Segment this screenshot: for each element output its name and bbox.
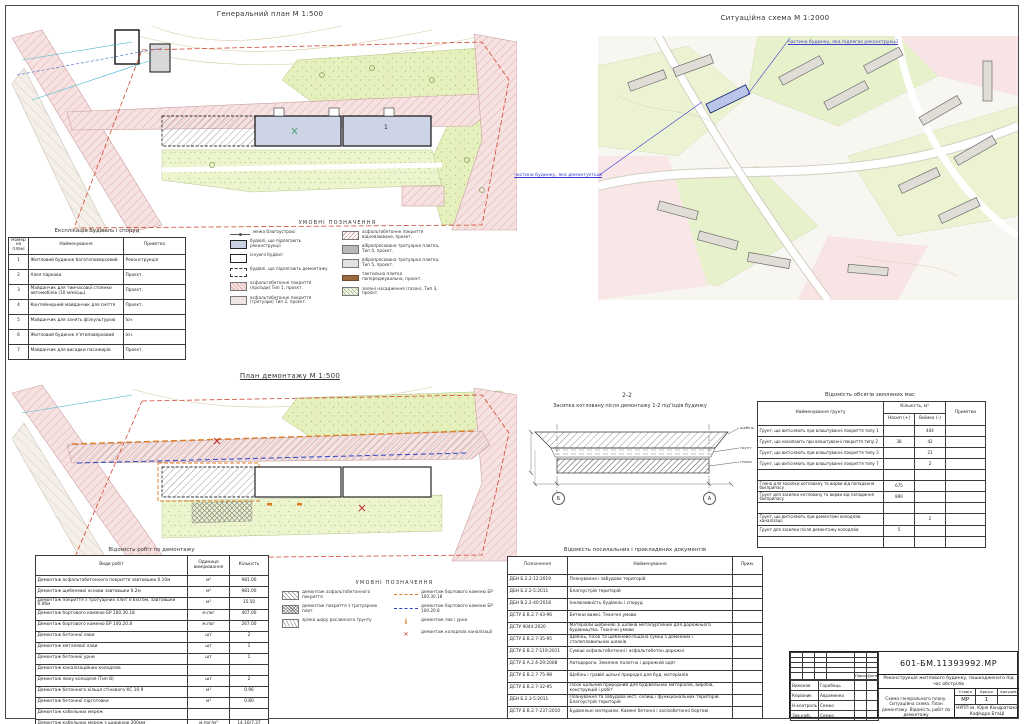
axis-marker-left: Б [552,492,565,505]
situation-map [598,36,1018,300]
table-cell: Демонтаж металевої лави [36,642,188,653]
table-row: Демонтаж покриття з тротуарних плит 0.6х… [36,598,269,610]
table-cell [733,575,763,587]
table-cell [733,659,763,671]
table-cell [733,599,763,611]
sw-dem-bort2-icon [394,608,418,609]
table-cell: 0.96 [230,686,269,697]
column-header: Дата [867,673,879,680]
table-row: ДСТУ Б В.2.7-119:2011Суміші асфальтобето… [508,647,763,659]
table-row: Демонтаж кабельних мереж [36,708,269,719]
table-cell: Матеріали щебеневі зі шлаків металургійн… [568,623,733,635]
table-cell: 42 [915,437,946,448]
table-cell: Алея паркова [29,269,124,284]
table-cell: 267.00 [230,620,269,631]
stage-sheet-grid: Стадія Аркуш Аркушів МР 1 [955,689,1019,705]
table-cell: Демонтаж бетонної лави [36,631,188,642]
column-header: Номер на плані [9,238,29,255]
table-cell: Щебінь і гравій щільні природні для буд.… [568,671,733,683]
table-row: Демонтаж бетонного кільця стінового КС 1… [36,686,269,697]
table-row [758,503,986,514]
sheet-label: Аркуш [976,689,997,696]
table-cell: 3 [9,284,29,299]
table-cell: Ґрунт, що витісняють при влаштуванні пок… [758,459,884,470]
legend-item: асфальтобетонне покриття (проїзди) Тип 1… [230,281,328,291]
table-cell: Бетони важкі. Технічні умови [568,611,733,623]
table-cell: 2 [915,459,946,470]
table-row: ДБН В.2.2-40:2018Інклюзивність будівель … [508,599,763,611]
table-cell: м³ [188,686,230,697]
legend-item: асфальтобетонне покриття відновлюване, п… [342,230,440,240]
sw-demo-icon [230,268,247,277]
backfill-top-layer [535,432,728,448]
table-cell: Пісок щільний природний для будівельних … [568,683,733,695]
legend-label: демонтаж колодязів каналізації [421,630,504,635]
table-row: ДСТУ Б В.2.7-237:2010Будівельні матеріал… [508,707,763,719]
stage-value: МР [955,696,976,705]
table-cell [946,492,986,503]
table-cell: м² [188,587,230,598]
table-cell: 7 [9,344,29,359]
column-header: Насип (+) [884,414,915,426]
table-cell [855,691,867,701]
table-cell: Проєкт. [124,344,186,359]
table-cell: Реконструкція [124,254,186,269]
legend-title: УМОВНІ ПОЗНАЧЕННЯ [230,220,445,226]
table-cell: ДБН Б.2.2-5:2011 [508,587,568,599]
table-cell: Проєкт. [124,284,186,299]
sw-recon-icon [230,240,247,249]
sw-dem-lav-icon [394,619,418,626]
table-cell [733,671,763,683]
table-row: Демонтаж бортового каменю БР 100.30.18м.… [36,609,269,620]
table-cell [230,664,269,675]
table-header-row: Позначення Найменування Прим. [508,557,763,575]
building-section-right [343,467,431,497]
table-cell [733,707,763,719]
legend-label: існуючі будівлі [250,253,328,258]
table-cell [758,536,884,547]
legend-item: вібропресована тротуарна плитка, Тип 5, … [342,258,440,268]
table-row: ДБН Б.2.2-12:2019Планування і забудова т… [508,575,763,587]
earthworks-title: Відомість обсягів земляних мас [755,392,985,398]
section-callout: щебінь [740,425,754,430]
table-cell [230,708,269,719]
table-cell [867,691,879,701]
lawn-upper [282,48,504,102]
legend-label: асфальтобетонне покриття (тротуари) Тип … [250,296,328,306]
sheets-label: Аркушів [998,689,1019,696]
table-cell: Керівник [791,691,819,701]
legend-column-right: асфальтобетонне покриття відновлюване, п… [342,230,440,305]
table-cell: Н.контроль [791,701,819,711]
paving-demolition-area [192,501,252,523]
table-row: ДСТУ Б В.2.7-35-95Щебінь, пісок та щебен… [508,635,763,647]
table-cell [915,525,946,536]
table-cell: 981.00 [230,576,269,587]
roles-table: ВиконавГоробецьКерівникАвраменкоН.контро… [790,680,879,721]
table-cell: 675 [884,481,915,492]
table-cell [946,426,986,437]
legend-column-left: демонтаж асфальтобетонного покриттядемон… [282,590,380,638]
table-cell [867,701,879,711]
table-cell: 407.00 [230,609,269,620]
legend-item: асфальтобетонне покриття (тротуари) Тип … [230,296,328,306]
table-cell: Демонтаж бортового каменю БР 100.30.18 [36,609,188,620]
table-cell: ДСТУ Б В.2.7-35-95 [508,635,568,647]
table-row: Ґрунт, що витісняють при демонтажі колод… [758,514,986,525]
general-plan-drawing [12,20,517,232]
legend-item: будівлі, що підлягають демонтажу [230,267,328,277]
table-cell: 38 [884,437,915,448]
table-cell: Демонтаж бетонної урни [36,653,188,664]
table-row: 6Житловий будинок п'ятиповерховийІсн. [9,329,186,344]
table-cell: ДСТУ Б В.2.7-43-96 [508,611,568,623]
table-cell: Майданчик для тимчасової стоянки автомоб… [29,284,124,299]
table-cell [733,647,763,659]
table-cell: Демонтаж бетонного кільця стінового КС 1… [36,686,188,697]
sw-green-icon [342,287,359,296]
sw-dem-soil-icon [282,619,299,628]
table-cell: Планування і забудова територій [568,575,733,587]
table-cell: ДСТУ Б А.2.4-29:2008 [508,659,568,671]
table-cell [946,437,986,448]
table-row: Демонтаж металевої лавишт1 [36,642,269,653]
revision-grid: Підпис Дата [790,652,879,680]
table-cell [946,503,986,514]
table-row: 4Контейнерний майданчик для сміттяПроєкт… [9,299,186,314]
table-cell: Демонтаж бортового каменю БР 100.20.8 [36,620,188,631]
legend-label: демонтаж бортового каменю БР 100.30.18 [421,590,504,600]
table-cell: Існ. [124,329,186,344]
table-cell: Ґрунт, що витісняють при демонтажі колод… [758,514,884,525]
table-row: Ґрунт, що насипають при влаштуванні покр… [758,437,986,448]
table-cell: 981.00 [230,587,269,598]
table-header-row: Найменування ґрунту Кількість, м³ Приміт… [758,402,986,414]
table-row: ДБН Б.2.3-5:2011Планування та забудова м… [508,695,763,707]
legend-label: асфальтобетонне покриття (проїзди) Тип 1… [250,281,328,291]
table-row: ДСТУ Б В.2.7-43-96Бетони важкі. Технічні… [508,611,763,623]
column-header: Одиниця вимірювання [188,556,230,576]
table-cell: ДСТУ Б В.2.7-119:2011 [508,647,568,659]
column-header: Позначення [508,557,568,575]
legend-item: демонтаж асфальтобетонного покриття [282,590,380,600]
table-cell: Глина для засипки котловану та вирви від… [758,481,884,492]
table-cell [884,514,915,525]
legend-column-right: демонтаж бортового каменю БР 100.30.18де… [394,590,504,638]
table-cell [946,525,986,536]
table-cell: Демонтаж люку колодязя (Тип В) [36,675,188,686]
table-cell: Суміші асфальтобетонні і асфальтобетон д… [568,647,733,659]
axis-marker-right: А [703,492,716,505]
table-row: 2Алея парковаПроєкт. [9,269,186,284]
table-cell: шт [188,631,230,642]
table-cell: 14.16/7.37 [230,719,269,724]
table-row: Ґрунт, що витісняють при влаштуванні пок… [758,448,986,459]
table-cell: 0.80 [230,697,269,708]
legend-label: демонтаж асфальтобетонного покриття [302,590,380,600]
table-cell [915,492,946,503]
legend-label: тактильна плитка попереджувальна, проєкт… [362,272,440,282]
table-cell: Майданчик для висадки пасажирів [29,344,124,359]
table-cell: 2 [230,675,269,686]
table-cell: ДСТУ Б В.2.7-32-95 [508,683,568,695]
table-cell: Демонтаж щебеневої основи завтовшки 0.2м [36,587,188,598]
table-cell: Благоустрій територій [568,587,733,599]
column-header: Найменування ґрунту [758,402,884,426]
table-cell: 1 [230,642,269,653]
table-cell: Житловий будинок багатоповерховий [29,254,124,269]
table-row: Ґрунт для засипки котловану та вирви від… [758,492,986,503]
table-cell [733,695,763,707]
section-callout: ґрунт [740,445,751,450]
table-cell: м.пог [188,609,230,620]
legend-label: будівлі, що підлягають реконструкції [250,239,328,249]
table-row: ДСТУ Б В.2.7-32-95Пісок щільний природни… [508,683,763,695]
sw-plit4-icon [342,245,359,254]
demolition-legend: УМОВНІ ПОЗНАЧЕННЯ демонтаж асфальтобетон… [282,580,507,638]
legend-item: будівлі, що підлягають реконструкції [230,239,328,249]
sw-asph-ex-icon [342,231,359,240]
table-cell: ДБН Б.2.3-5:2011 [508,695,568,707]
column-header: Прим. [733,557,763,575]
table-row [758,536,986,547]
table-cell [188,708,230,719]
explication-table: Номер на плані Найменування Примітка 1Жи… [8,237,186,360]
table-row: Демонтаж бетонної лавишт2 [36,631,269,642]
table-row: ДБН Б.2.2-5:2011Благоустрій територій [508,587,763,599]
organization: НУПП ім. Юрія Кондратюка Кафедра БтаЦІ [955,705,1019,718]
document-number: 601-БМ.11393992.МР [878,652,1019,675]
table-cell: шт [188,642,230,653]
section-title: 2-2 [567,392,687,399]
title-block-right: 601-БМ.11393992.МР Реконструкція житлово… [878,652,1019,717]
table-cell: м³ [188,697,230,708]
building-section-left [255,116,341,146]
column-header: Найменування [568,557,733,575]
table-cell [855,701,867,711]
table-cell [915,481,946,492]
table-cell: м.пог/м³ [188,719,230,724]
table-cell: 6 [9,329,29,344]
table-cell [855,681,867,691]
table-cell: Щебінь, пісок та щебенево-піщана суміш з… [568,635,733,647]
table-row: Зав.каф.Семко [791,711,879,721]
table-cell [733,623,763,635]
table-row: ДСТУ Б В.2.7-75-98Щебінь і гравій щільні… [508,671,763,683]
column-header: Найменування [29,238,124,255]
legend-item: зрізка шару рослинного ґрунту [282,618,380,628]
legend-label: будівлі, що підлягають демонтажу [250,267,328,272]
legend-item: вібропресована тротуарна плитка, Тип 4, … [342,244,440,254]
table-cell: Проєкт. [124,269,186,284]
column-header: Виїмка (-) [915,414,946,426]
building-section-right [343,116,431,146]
earthworks-table: Найменування ґрунту Кількість, м³ Приміт… [757,401,986,548]
table-row: Демонтаж кабельних мереж з шириною 200мм… [36,719,269,724]
table-row: Ґрунт, що витісняють при влаштуванні пок… [758,459,986,470]
sheet-content: Схема генерального плану. Ситуаційна схе… [878,689,955,718]
building-demolition-part [162,467,255,497]
table-cell [855,711,867,721]
table-cell: Семко [819,711,855,721]
table-cell: м.пог [188,620,230,631]
table-cell: ДСТУ 9044:2020 [508,623,568,635]
table-cell [946,459,986,470]
column-header: Кількість, м³ [884,402,946,414]
table-cell: Ґрунт для засипки котловану та вирви від… [758,492,884,503]
table-row: Н.контрольСемко [791,701,879,711]
table-cell: шт [188,675,230,686]
table-cell [733,635,763,647]
demolition-plan-title: План демонтажу М 1:500 [180,372,400,380]
table-cell: 2 [9,269,29,284]
sw-asph1-icon [230,282,247,291]
table-cell [884,536,915,547]
table-row: Глина для засипки котловану та вирви від… [758,481,986,492]
sw-plit5-icon [342,259,359,268]
legend-item: демонтаж колодязів каналізації [394,630,504,638]
table-cell: 4 [9,299,29,314]
table-cell: 2 [230,631,269,642]
table-cell: 15.50 [230,598,269,610]
table-cell: Проєкт. [124,299,186,314]
legend-label: межа благоустрою [253,230,328,235]
table-row: Демонтаж бортового каменю БР 100.20.8м.п… [36,620,269,631]
table-cell: Ґрунт, що витісняють при влаштуванні пок… [758,448,884,459]
table-cell [733,587,763,599]
table-row: КерівникАвраменко [791,691,879,701]
table-row: 5Майданчик для занять фізкультуроюІсн. [9,314,186,329]
organization-line2: Кафедра БтаЦІ [955,712,1019,718]
legend-label: демонтаж бортового каменю БР 100.20.8 [421,604,504,614]
legend-item: зелені насадження (газон), Тип 3, проєкт… [342,287,440,297]
table-cell: Горобець [819,681,855,691]
table-header-row: Підпис Дата [791,673,879,680]
title-block-left: Підпис Дата ВиконавГоробецьКерівникАврам… [790,652,878,717]
table-cell: Автодороги. Земляне полотно і дорожній о… [568,659,733,671]
table-cell [884,426,915,437]
table-cell [884,470,915,481]
table-cell: ДБН В.2.2-40:2018 [508,599,568,611]
table-cell: м² [188,598,230,610]
table-cell [733,611,763,623]
table-cell [915,536,946,547]
sw-dem-asph-icon [282,591,299,600]
sw-dem-kol-icon [394,631,418,638]
table-cell: Демонтаж каналізаційних колодязів [36,664,188,675]
explication-title: Експлікація будівель і споруд [8,228,186,234]
sheet-number: 1 [976,696,997,705]
table-cell [758,470,884,481]
table-cell: Житловий будинок п'ятиповерховий [29,329,124,344]
sw-asph2-icon [230,296,247,305]
table-row: Демонтаж люку колодязя (Тип В)шт2 [36,675,269,686]
table-row: Демонтаж бетонної підготовким³0.80 [36,697,269,708]
table-cell: м² [188,576,230,587]
table-cell: Ґрунт, що насипають при влаштуванні покр… [758,437,884,448]
table-cell: Демонтаж кабельних мереж з шириною 200мм [36,719,188,724]
table-row: 3Майданчик для тимчасової стоянки автомо… [9,284,186,299]
section-subtitle: Засипка котловану після демонтажу 1-2 пі… [525,403,735,409]
situation-note-left: частина будинку, яка демонтується [492,173,602,179]
table-cell: 5 [9,314,29,329]
sheets-value [998,696,1019,705]
legend-item: існуючі будівлі [230,253,328,263]
table-cell: 21 [915,448,946,459]
table-cell: ДБН Б.2.2-12:2019 [508,575,568,587]
table-cell [946,481,986,492]
legend-item: демонтаж бортового каменю БР 100.20.8 [394,604,504,614]
table-row [758,470,986,481]
table-cell: Майданчик для занять фізкультурою [29,314,124,329]
table-cell: Демонтаж кабельних мереж [36,708,188,719]
table-row: Демонтаж асфальтобетонного покриття завт… [36,576,269,587]
table-row: ДСТУ Б А.2.4-29:2008Автодороги. Земляне … [508,659,763,671]
table-cell: 5 [884,525,915,536]
table-cell [915,503,946,514]
legend-item: демонтаж покриття з тротуарних плит [282,604,380,614]
table-cell [946,514,986,525]
table-cell [946,536,986,547]
column-header: Примітка [124,238,186,255]
table-cell [884,448,915,459]
table-cell: 1 [230,653,269,664]
title-block: Підпис Дата ВиконавГоробецьКерівникАврам… [789,651,1018,718]
sw-boundary-icon [230,234,250,235]
situation-note-top: частина будинку, яка підлягає реконструк… [763,40,923,46]
section-callout: глина [740,459,752,464]
table-cell: 1 [9,254,29,269]
column-header: Підпис [855,673,867,680]
table-cell: ДСТУ Б В.2.7-237:2010 [508,707,568,719]
backfill-middle-layer [551,448,715,457]
table-cell: шт [188,653,230,664]
works-title: Відомість робіт по демонтажу [35,547,268,553]
table-row: 1Житловий будинок багатоповерховийРеконс… [9,254,186,269]
backfill-bottom-layer [557,459,709,473]
table-cell: 2 [915,514,946,525]
legend-label: демонтаж покриття з тротуарних плит [302,604,380,614]
table-header-row: Номер на плані Найменування Примітка [9,238,186,255]
documents-table: Позначення Найменування Прим. ДБН Б.2.2-… [507,556,763,719]
legend-label: зрізка шару рослинного ґрунту [302,618,380,623]
table-cell [946,448,986,459]
sw-dem-bort1-icon [394,594,418,595]
table-row: ДСТУ 9044:2020Матеріали щебеневі зі шлак… [508,623,763,635]
table-cell [867,681,879,691]
table-cell: Існ. [124,314,186,329]
table-cell: Контейнерний майданчик для сміття [29,299,124,314]
legend-item: демонтаж бортового каменю БР 100.30.18 [394,590,504,600]
legend-label: демонтаж лав і урни [421,618,504,623]
building-number-label: 1 [384,124,388,131]
table-cell [188,664,230,675]
legend-column-left: межа благоустроюбудівлі, що підлягають р… [230,230,328,305]
sw-tact-icon [342,275,359,281]
table-cell: ДСТУ Б В.2.7-75-98 [508,671,568,683]
table-cell: Семко [819,701,855,711]
table-cell: 890 [884,492,915,503]
table-row: 7Майданчик для висадки пасажирівПроєкт. [9,344,186,359]
table-cell [946,470,986,481]
project-name: Реконструкція житлового будинку, пошкодж… [878,675,1019,689]
table-cell: Зав.каф. [791,711,819,721]
table-cell: Будівельні матеріали. Камені бетонні і з… [568,707,733,719]
table-cell [733,683,763,695]
legend-item: межа благоустрою [230,230,328,235]
table-cell: Ґрунт для засипки після демонтажу колодя… [758,525,884,536]
